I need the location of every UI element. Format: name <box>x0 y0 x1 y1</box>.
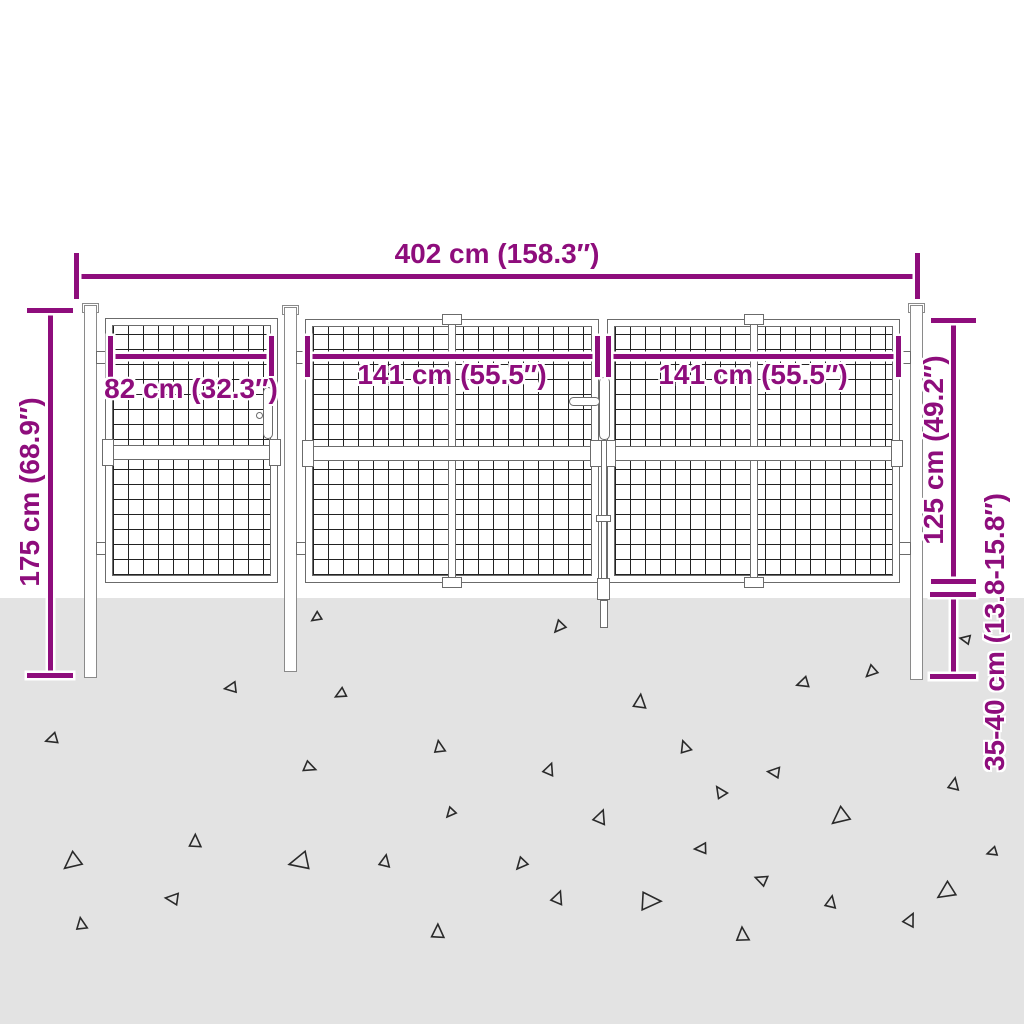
lock-plate <box>599 377 610 440</box>
dim-total-width-tick-right <box>915 253 920 299</box>
dim-gate-height-label: 125 cm (49.2″) <box>920 355 948 544</box>
dim-left-gate-label: 141 cm (55.5″) <box>357 361 546 389</box>
rail-bracket <box>891 440 903 467</box>
gravel-triangles <box>0 598 1024 1024</box>
hinge <box>899 542 911 555</box>
dim-left-gate-tick-right <box>595 336 600 377</box>
dim-small-gate-tick-left <box>108 336 113 377</box>
drop-rod-collar <box>596 515 611 522</box>
center-bar-cap <box>442 577 462 588</box>
dim-small-gate-tick-right <box>269 336 274 377</box>
dim-right-gate-tick-right <box>896 336 901 377</box>
center-bar-cap <box>744 577 764 588</box>
dim-total-width-line <box>76 274 918 279</box>
rail-bracket <box>302 440 314 467</box>
dim-total-width-tick-left <box>74 253 79 299</box>
dim-gate-height-line <box>951 320 956 582</box>
dim-below-ground-tick-top <box>930 592 976 597</box>
dim-gate-height-tick-bottom <box>931 579 976 584</box>
dim-gate-height-tick-top <box>931 318 976 323</box>
center-bar-cap <box>442 314 462 325</box>
center-bar-cap <box>744 314 764 325</box>
dim-small-gate-line <box>110 354 272 359</box>
drop-rod-sleeve <box>597 578 610 600</box>
ground <box>0 598 1024 1024</box>
dim-right-gate-tick-left <box>606 336 611 377</box>
dim-left-gate-tick-left <box>305 336 310 377</box>
gate-dimension-diagram: 402 cm (158.3″) 175 cm (68.9″) 82 cm (32… <box>0 0 1024 1024</box>
rail-bracket <box>269 439 281 466</box>
dim-post-height-line <box>48 310 53 676</box>
dim-post-height-tick-top <box>27 308 73 313</box>
small-gate-mid-rail <box>104 445 279 460</box>
drop-rod-tip <box>600 600 608 628</box>
rail-bracket <box>102 439 114 466</box>
drop-rod <box>601 440 607 585</box>
latch-knob <box>256 412 263 419</box>
dim-total-width-label: 402 cm (158.3″) <box>395 240 600 268</box>
dim-below-ground-label: 35-40 cm (13.8-15.8″) <box>981 493 1009 771</box>
dim-below-ground-tick-bottom <box>930 674 976 679</box>
dim-post-height-label: 175 cm (68.9″) <box>16 397 44 586</box>
right-gate-mid-rail <box>606 446 901 461</box>
dim-below-ground-line <box>951 594 956 678</box>
left-gate-mid-rail <box>304 446 600 461</box>
dim-post-height-tick-bottom <box>27 673 73 678</box>
dim-right-gate-label: 141 cm (55.5″) <box>658 361 847 389</box>
dim-small-gate-label: 82 cm (32.3″) <box>104 375 278 403</box>
gate-handle <box>569 397 600 406</box>
